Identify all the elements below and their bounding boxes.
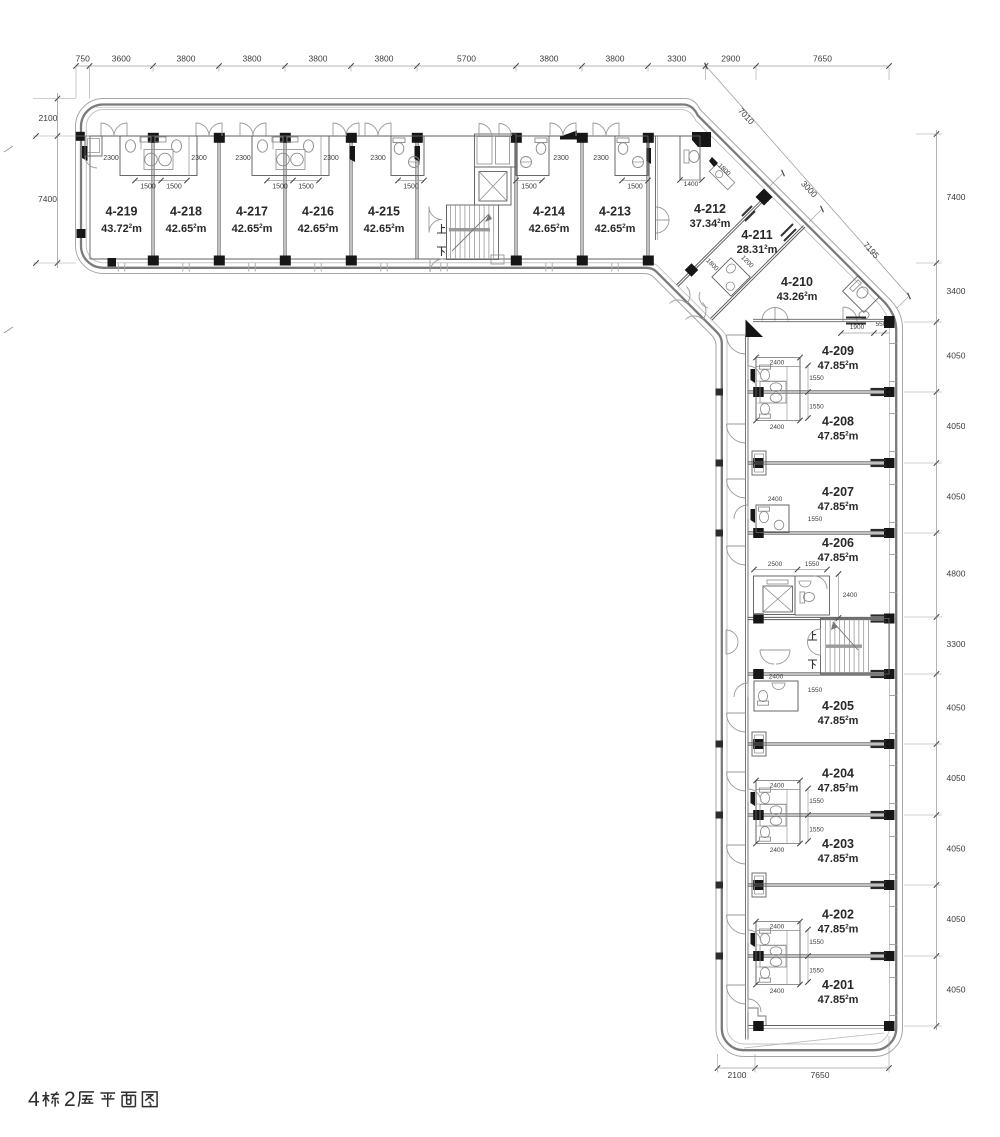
- svg-text:1550: 1550: [809, 968, 824, 975]
- svg-text:4-204: 4-204: [822, 767, 854, 781]
- svg-text:1500: 1500: [627, 184, 643, 191]
- svg-text:2: 2: [64, 1088, 76, 1111]
- svg-text:1550: 1550: [808, 687, 823, 694]
- svg-text:1550: 1550: [809, 798, 824, 805]
- svg-text:1900: 1900: [850, 324, 865, 331]
- svg-text:2300: 2300: [191, 155, 207, 162]
- svg-text:4-208: 4-208: [822, 415, 854, 429]
- svg-text:1500: 1500: [298, 184, 314, 191]
- svg-text:4-219: 4-219: [106, 205, 138, 219]
- svg-text:2300: 2300: [323, 155, 339, 162]
- svg-text:1550: 1550: [809, 404, 824, 411]
- svg-text:7400: 7400: [38, 194, 57, 204]
- svg-text:1500: 1500: [521, 184, 537, 191]
- svg-text:3400: 3400: [947, 286, 966, 296]
- svg-text:7650: 7650: [813, 54, 832, 64]
- svg-text:3800: 3800: [375, 54, 394, 64]
- svg-text:42.652m: 42.652m: [232, 223, 273, 235]
- svg-text:4-210: 4-210: [781, 275, 813, 289]
- svg-text:4-209: 4-209: [822, 344, 854, 358]
- svg-text:43.722m: 43.722m: [101, 223, 142, 235]
- svg-text:47.852m: 47.852m: [818, 783, 859, 795]
- svg-text:4-206: 4-206: [822, 536, 854, 550]
- svg-text:47.852m: 47.852m: [818, 994, 859, 1006]
- svg-text:1500: 1500: [166, 184, 182, 191]
- svg-text:1550: 1550: [808, 516, 823, 523]
- svg-text:2400: 2400: [770, 424, 785, 431]
- svg-text:2400: 2400: [843, 592, 858, 599]
- svg-text:28.312m: 28.312m: [737, 244, 778, 256]
- svg-text:3800: 3800: [177, 54, 196, 64]
- svg-text:4050: 4050: [947, 351, 966, 361]
- svg-text:1550: 1550: [809, 827, 824, 834]
- svg-text:3300: 3300: [947, 639, 966, 649]
- svg-text:37.342m: 37.342m: [690, 218, 731, 230]
- svg-text:4050: 4050: [947, 914, 966, 924]
- svg-text:42.652m: 42.652m: [595, 223, 636, 235]
- svg-text:4-213: 4-213: [599, 205, 631, 219]
- svg-text:42.652m: 42.652m: [298, 223, 339, 235]
- svg-text:47.852m: 47.852m: [818, 431, 859, 443]
- svg-text:4-217: 4-217: [236, 205, 268, 219]
- svg-text:3300: 3300: [667, 54, 686, 64]
- svg-text:42.652m: 42.652m: [364, 223, 405, 235]
- svg-text:47.852m: 47.852m: [818, 501, 859, 513]
- svg-text:4-205: 4-205: [822, 699, 854, 713]
- svg-text:3800: 3800: [309, 54, 328, 64]
- svg-text:2400: 2400: [770, 988, 785, 995]
- svg-text:750: 750: [76, 54, 90, 64]
- svg-text:7650: 7650: [811, 1070, 830, 1080]
- svg-text:2900: 2900: [721, 54, 740, 64]
- svg-text:4-202: 4-202: [822, 908, 854, 922]
- svg-text:4-215: 4-215: [368, 205, 400, 219]
- svg-text:2500: 2500: [768, 561, 783, 568]
- svg-text:4050: 4050: [947, 773, 966, 783]
- svg-text:2400: 2400: [770, 783, 785, 790]
- svg-text:47.852m: 47.852m: [818, 552, 859, 564]
- svg-text:3600: 3600: [112, 54, 131, 64]
- svg-text:47.852m: 47.852m: [818, 360, 859, 372]
- svg-text:2100: 2100: [39, 113, 58, 123]
- svg-text:2300: 2300: [370, 155, 386, 162]
- svg-text:5700: 5700: [457, 54, 476, 64]
- svg-text:2400: 2400: [769, 674, 784, 681]
- svg-text:3800: 3800: [243, 54, 262, 64]
- svg-text:4-212: 4-212: [694, 202, 726, 216]
- svg-text:4: 4: [28, 1088, 40, 1111]
- svg-text:2300: 2300: [235, 155, 251, 162]
- svg-text:4-211: 4-211: [741, 228, 772, 242]
- svg-text:1550: 1550: [809, 939, 824, 946]
- svg-text:3800: 3800: [540, 54, 559, 64]
- svg-text:4050: 4050: [947, 985, 966, 995]
- svg-text:2100: 2100: [728, 1070, 747, 1080]
- svg-text:47.852m: 47.852m: [818, 853, 859, 865]
- svg-text:1500: 1500: [140, 184, 156, 191]
- svg-text:4-207: 4-207: [822, 485, 854, 499]
- svg-text:4050: 4050: [947, 421, 966, 431]
- svg-text:2300: 2300: [103, 155, 119, 162]
- svg-text:2400: 2400: [768, 496, 783, 503]
- svg-text:1550: 1550: [809, 375, 824, 382]
- svg-text:4-214: 4-214: [533, 205, 565, 219]
- svg-text:4050: 4050: [947, 844, 966, 854]
- svg-text:4-218: 4-218: [170, 205, 202, 219]
- svg-text:3800: 3800: [606, 54, 625, 64]
- svg-text:4-216: 4-216: [302, 205, 334, 219]
- svg-text:7400: 7400: [947, 192, 966, 202]
- svg-text:2400: 2400: [770, 924, 785, 931]
- svg-text:2400: 2400: [770, 360, 785, 367]
- svg-text:43.262m: 43.262m: [777, 291, 818, 303]
- svg-text:4800: 4800: [947, 569, 966, 579]
- svg-text:1500: 1500: [272, 184, 288, 191]
- svg-text:4-203: 4-203: [822, 837, 854, 851]
- svg-text:42.652m: 42.652m: [166, 223, 207, 235]
- svg-text:2300: 2300: [593, 155, 609, 162]
- svg-text:42.652m: 42.652m: [529, 223, 570, 235]
- svg-text:4050: 4050: [947, 703, 966, 713]
- svg-text:47.852m: 47.852m: [818, 924, 859, 936]
- svg-text:1400: 1400: [684, 181, 699, 188]
- svg-text:2300: 2300: [553, 155, 569, 162]
- svg-text:2400: 2400: [770, 847, 785, 854]
- svg-text:4-201: 4-201: [822, 978, 854, 992]
- svg-text:4050: 4050: [947, 492, 966, 502]
- svg-text:1500: 1500: [403, 184, 419, 191]
- svg-text:47.852m: 47.852m: [818, 715, 859, 727]
